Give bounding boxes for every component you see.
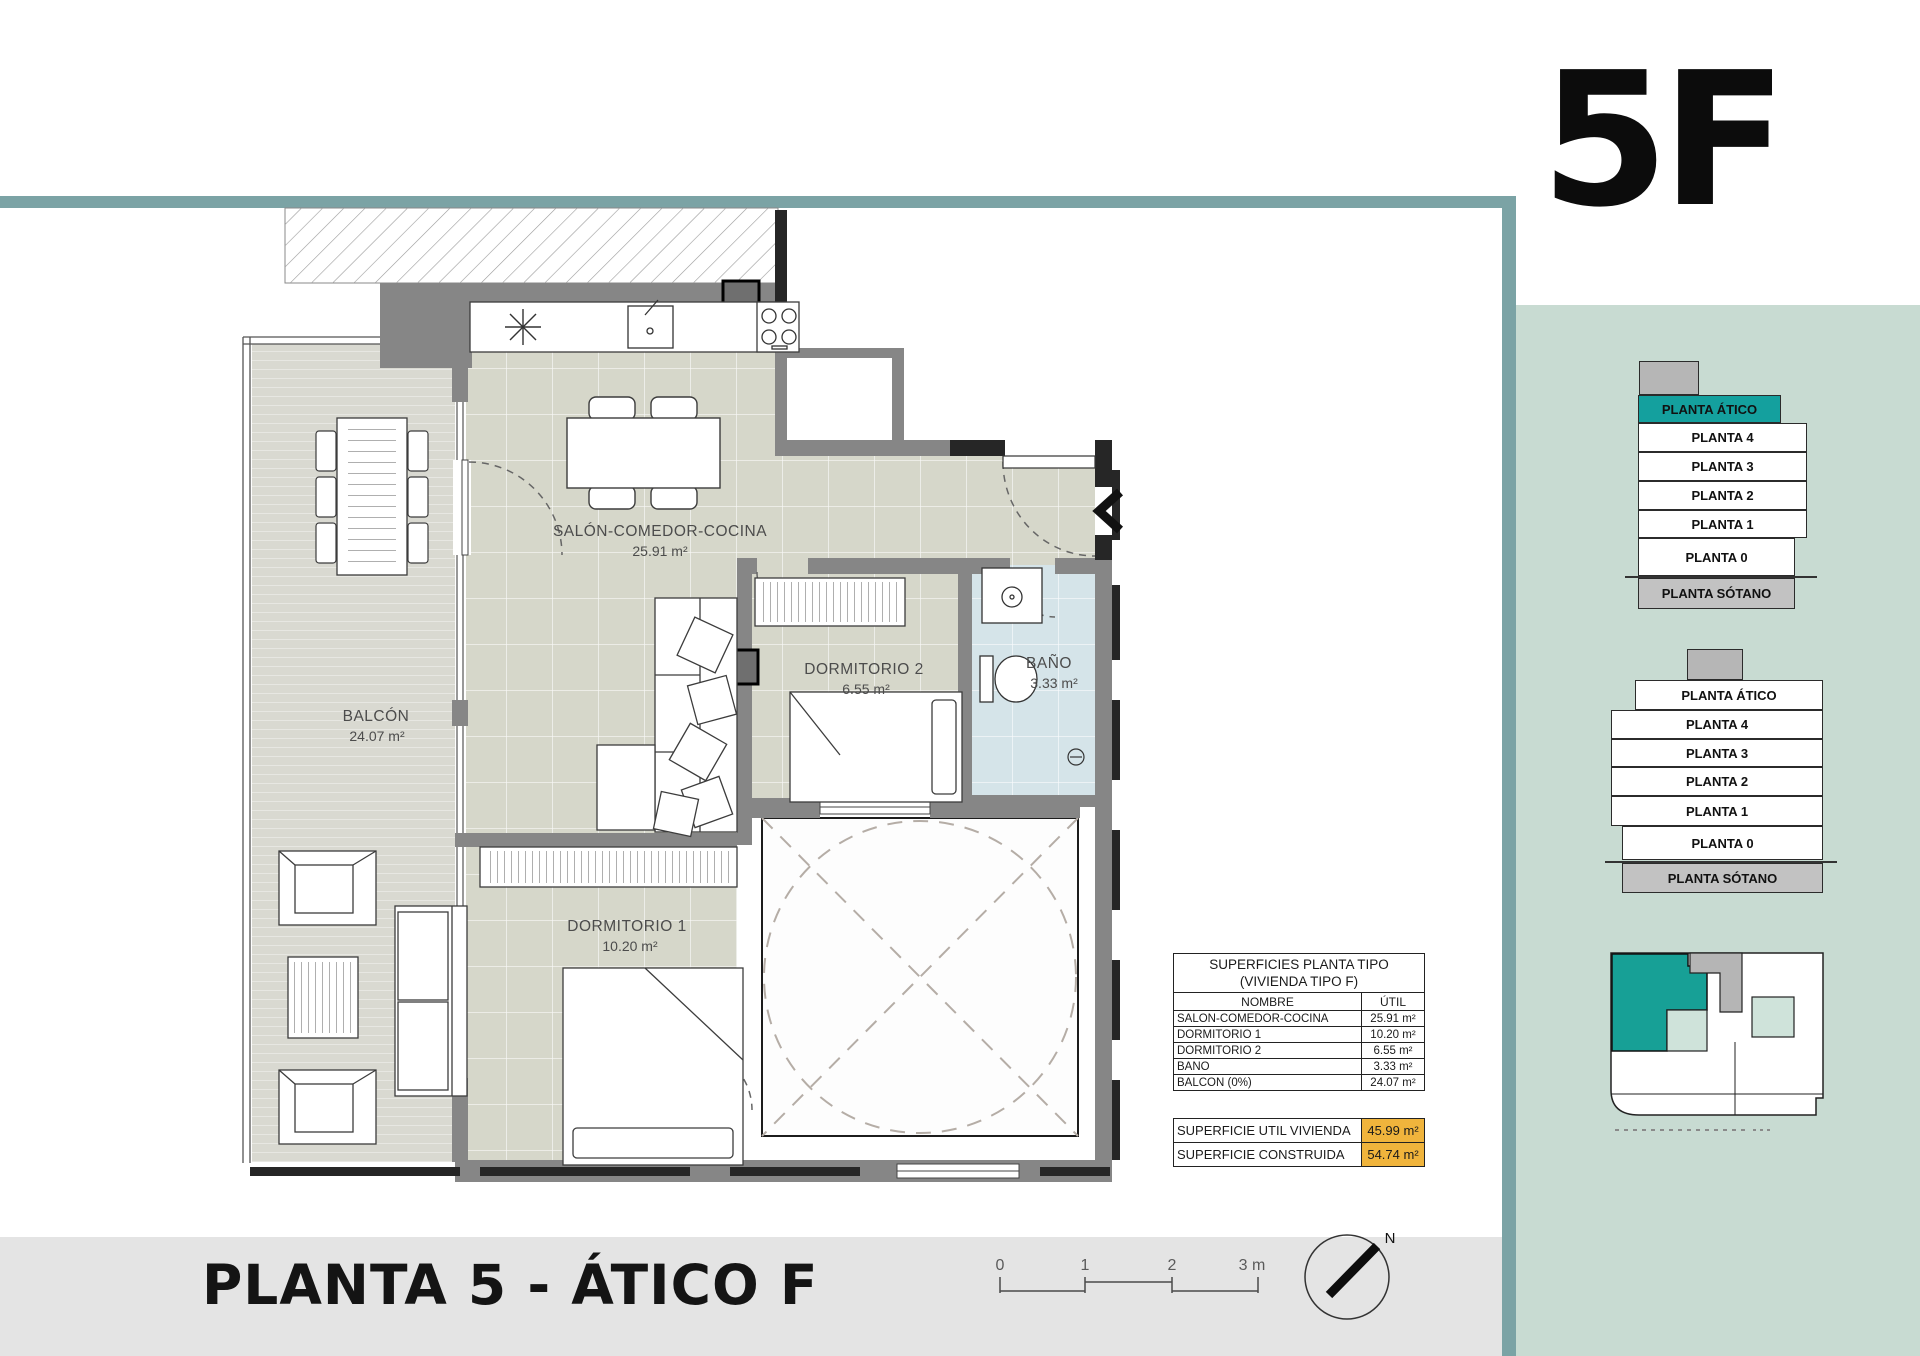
bed-d1	[563, 968, 743, 1165]
scale-bar	[1000, 1277, 1258, 1293]
stack2-planta-0: PLANTA 0	[1622, 826, 1823, 860]
table-row: BALCÓN (0%) 24.07 m²	[1174, 1075, 1424, 1090]
wardrobe-d2	[755, 578, 905, 626]
total-value-highlight: 54.74 m²	[1361, 1143, 1424, 1166]
table-gap	[1173, 1091, 1425, 1118]
void-room	[762, 818, 1078, 1136]
col-util: ÚTIL	[1361, 993, 1424, 1010]
bath-sink	[982, 568, 1042, 623]
wardrobe-d1	[480, 847, 737, 887]
key-plan	[1595, 944, 1835, 1144]
area-salon: 25.91 m²	[632, 543, 688, 559]
surfaces-table-columns: NOMBRE ÚTIL	[1174, 993, 1424, 1011]
table-total-row: SUPERFICIE UTIL VIVIENDA 45.99 m²	[1174, 1119, 1424, 1143]
patio-2	[1752, 997, 1794, 1037]
compass-icon	[1305, 1235, 1389, 1319]
label-dorm2: DORMITORIO 2	[804, 661, 923, 678]
surfaces-table-main: SUPERFICIES PLANTA TIPO (VIVIENDA TIPO F…	[1173, 953, 1425, 1091]
balcony-coffee-table	[288, 957, 358, 1038]
balcony-armchair-2	[279, 1070, 376, 1144]
surfaces-table-title-line1: SUPERFICIES PLANTA TIPO	[1174, 956, 1424, 973]
patio-1	[1667, 1010, 1707, 1051]
sink-icon	[628, 300, 673, 348]
col-nombre: NOMBRE	[1174, 995, 1361, 1009]
balcony-armchair-1	[279, 851, 376, 925]
scale-tick-0: 0	[996, 1257, 1005, 1274]
surfaces-table-title: SUPERFICIES PLANTA TIPO (VIVIENDA TIPO F…	[1174, 954, 1424, 993]
area-dorm2: 6.55 m²	[842, 681, 890, 697]
scale-tick-3: 3 m	[1239, 1257, 1266, 1274]
stack2-planta-4: PLANTA 4	[1611, 710, 1823, 739]
stack1-planta-0: PLANTA 0	[1638, 538, 1795, 576]
stack1-planta-1: PLANTA 1	[1638, 510, 1807, 538]
north-label: N	[1385, 1230, 1396, 1247]
label-bano: BAÑO	[1026, 655, 1072, 672]
stack2-planta-2: PLANTA 2	[1611, 767, 1823, 796]
balcony-table	[337, 418, 407, 575]
area-dorm1: 10.20 m²	[602, 938, 658, 954]
roof-box	[1639, 361, 1699, 395]
stack1-planta-4: PLANTA 4	[1638, 423, 1807, 452]
page-title: PLANTA 5 - ÁTICO F	[202, 1253, 818, 1317]
stack1-planta-2: PLANTA 2	[1638, 481, 1807, 510]
page: SALÓN-COMEDOR-COCINA 25.91 m² BALCÓN 24.…	[0, 0, 1920, 1356]
surfaces-table-title-line2: (VIVIENDA TIPO F)	[1174, 973, 1424, 990]
table-row: DORMITORIO 2 6.55 m²	[1174, 1043, 1424, 1059]
scale-tick-2: 2	[1168, 1257, 1177, 1274]
table-total-row: SUPERFICIE CONSTRUIDA 54.74 m²	[1174, 1143, 1424, 1166]
surfaces-table: SUPERFICIES PLANTA TIPO (VIVIENDA TIPO F…	[1173, 953, 1425, 1167]
stack2-planta-1: PLANTA 1	[1611, 796, 1823, 826]
scale-tick-1: 1	[1081, 1257, 1090, 1274]
roof-box	[1687, 649, 1743, 680]
stack2-planta-sotano: PLANTA SÓTANO	[1622, 863, 1823, 893]
entrance-door-leaf	[1003, 456, 1095, 468]
stack1-planta-atico: PLANTA ÁTICO	[1638, 395, 1781, 423]
balcony-sofa	[395, 906, 467, 1096]
label-balcon: BALCÓN	[343, 708, 410, 725]
stack2-planta-3: PLANTA 3	[1611, 739, 1823, 767]
stack1-planta-sotano: PLANTA SÓTANO	[1638, 578, 1795, 609]
table-row: DORMITORIO 1 10.20 m²	[1174, 1027, 1424, 1043]
label-salon: SALÓN-COMEDOR-COCINA	[553, 523, 767, 540]
stack2-planta-atico: PLANTA ÁTICO	[1635, 680, 1823, 710]
table-row: SALÓN-COMEDOR-COCINA 25.91 m²	[1174, 1011, 1424, 1027]
bed-d2	[790, 692, 962, 802]
total-value-highlight: 45.99 m²	[1361, 1119, 1424, 1142]
fridge-icon	[505, 309, 541, 345]
area-balcon: 24.07 m²	[349, 728, 405, 744]
area-bano: 3.33 m²	[1030, 675, 1078, 691]
stack1-planta-3: PLANTA 3	[1638, 452, 1807, 481]
surfaces-table-totals: SUPERFICIE UTIL VIVIENDA 45.99 m² SUPERF…	[1173, 1118, 1425, 1167]
neighbor-hatch	[285, 208, 778, 283]
label-dorm1: DORMITORIO 1	[567, 918, 686, 935]
unit-code: 5F	[1530, 48, 1790, 233]
table-row: BAÑO 3.33 m²	[1174, 1059, 1424, 1075]
